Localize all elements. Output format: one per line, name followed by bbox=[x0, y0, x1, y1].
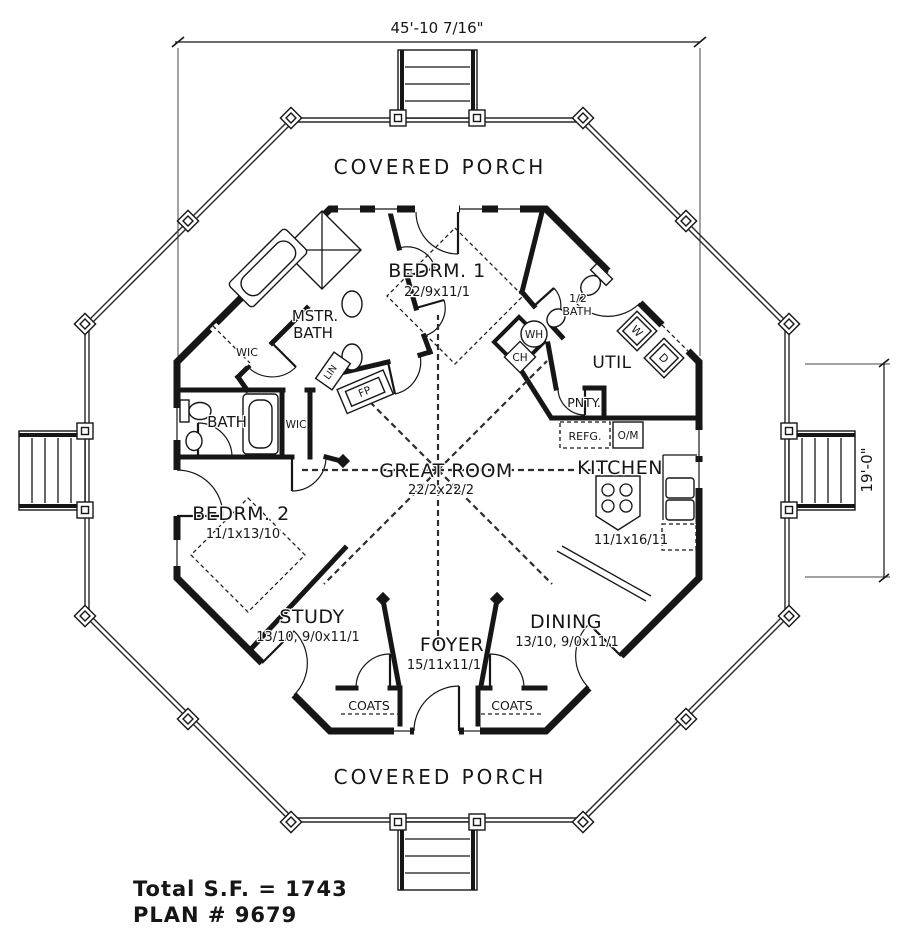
stairs-top bbox=[398, 50, 477, 118]
bath-sink bbox=[186, 432, 202, 451]
room-label-foyer: FOYER bbox=[420, 634, 484, 656]
total-sf-text: Total S.F. = 1743 bbox=[133, 877, 348, 901]
room-label-coats-left: COATS bbox=[348, 698, 390, 713]
covered-porch-bottom-label: COVERED PORCH bbox=[334, 765, 547, 789]
room-dims-great-room: 22/2x22/2 bbox=[408, 483, 474, 498]
room-label-util: UTIL bbox=[592, 353, 631, 373]
kitchen-sink-1 bbox=[666, 478, 694, 498]
kitchen-sink-2 bbox=[666, 500, 694, 520]
label-oven-micro: O/M bbox=[618, 430, 639, 442]
stairs-left bbox=[19, 431, 85, 510]
stairs-bottom bbox=[398, 822, 477, 890]
room-dims-bedrm2: 11/1x13/10 bbox=[206, 527, 280, 542]
room-label-mstr-bath-2: BATH bbox=[293, 324, 333, 342]
room-label-mstr-bath-1: MSTR. bbox=[292, 307, 338, 325]
room-label-half-bath-2: BATH bbox=[562, 305, 591, 318]
stairs-right bbox=[789, 431, 855, 510]
room-label-wic-master: WIC bbox=[236, 346, 258, 359]
covered-porch-top-label: COVERED PORCH bbox=[334, 155, 547, 179]
footer: Total S.F. = 1743 PLAN # 9679 bbox=[133, 877, 348, 927]
room-label-great-room: GREAT ROOM bbox=[379, 460, 513, 482]
room-label-dining: DINING bbox=[530, 611, 602, 633]
room-label-bedrm1: BEDRM. 1 bbox=[388, 260, 485, 282]
room-label-bath: BATH bbox=[207, 413, 247, 431]
master-sink-1 bbox=[342, 291, 362, 317]
room-dims-dining: 13/10, 9/0x11/1 bbox=[515, 635, 619, 650]
floor-plan-canvas: 45'-10 7/16" 19'-0" bbox=[0, 0, 900, 951]
room-label-pantry: PNTY. bbox=[567, 395, 601, 410]
room-label-wic-bedrm2: WIC bbox=[286, 419, 307, 431]
room-dims-bedrm1: 22/9x11/1 bbox=[404, 285, 470, 300]
bath-tub-inner bbox=[249, 400, 272, 448]
room-dims-foyer: 15/11x11/1 bbox=[407, 658, 481, 673]
label-chase: CH bbox=[512, 352, 527, 364]
room-label-study: STUDY bbox=[279, 606, 344, 628]
room-dims-kitchen: 11/1x16/11 bbox=[594, 533, 668, 548]
room-label-kitchen: KITCHEN bbox=[577, 457, 663, 479]
room-dims-study: 13/10, 9/0x11/1 bbox=[256, 630, 360, 645]
room-label-bedrm2: BEDRM. 2 bbox=[192, 503, 289, 525]
plan-number-text: PLAN # 9679 bbox=[133, 903, 297, 927]
label-refrigerator: REFG. bbox=[569, 430, 602, 443]
toilet-tank bbox=[180, 400, 189, 422]
room-label-half-bath-1: 1/2 bbox=[569, 292, 587, 305]
room-label-coats-right: COATS bbox=[491, 698, 533, 713]
overall-width-dimension: 45'-10 7/16" bbox=[390, 19, 483, 37]
side-length-dimension: 19'-0" bbox=[858, 447, 876, 492]
label-water-heater: WH bbox=[525, 329, 543, 341]
